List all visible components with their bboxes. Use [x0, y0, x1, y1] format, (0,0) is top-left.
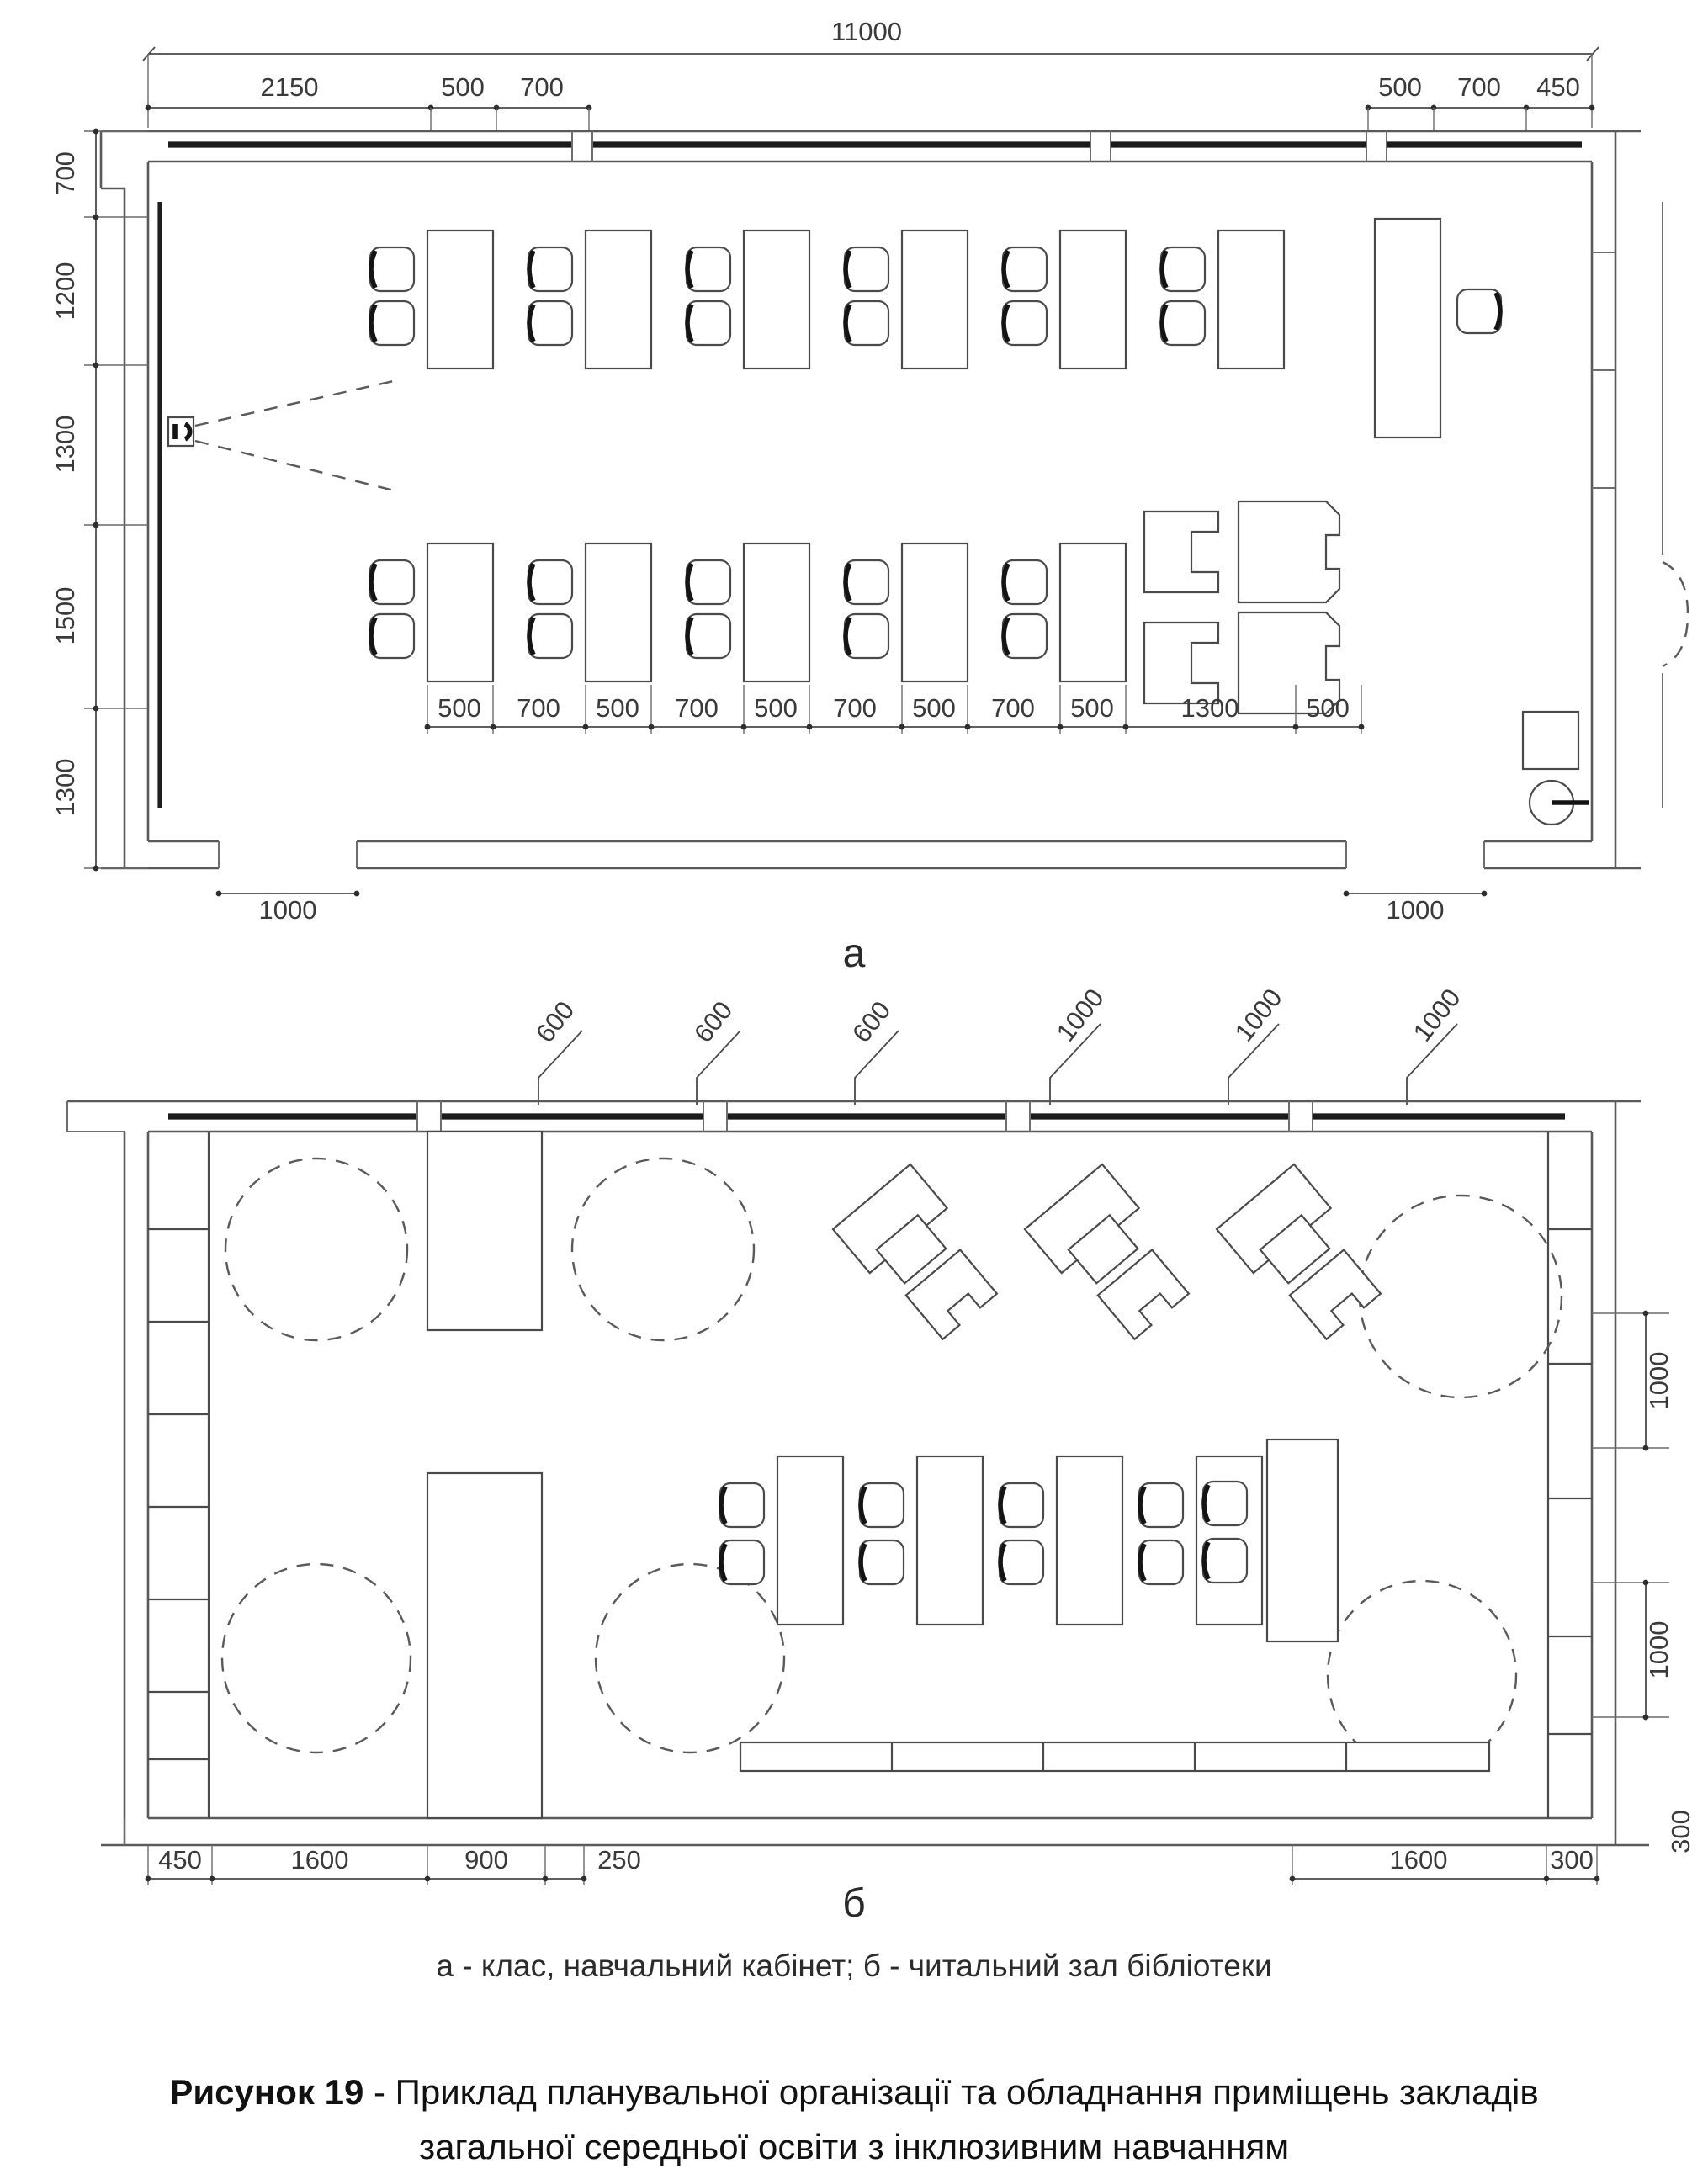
- teacher-desk: [1375, 219, 1501, 437]
- dim-label: 1600: [1390, 1845, 1448, 1874]
- dim-label: 1000: [259, 895, 317, 925]
- caption-line-2: загальної середньої освіти з інклюзивним…: [0, 2119, 1708, 2174]
- figure-legend: а - клас, навчальний кабінет; б - читаль…: [0, 1949, 1708, 1984]
- desk-group: [1003, 231, 1126, 369]
- walls: [101, 131, 1688, 868]
- dim-label: 500: [1070, 693, 1114, 723]
- dim-label: 1300: [50, 416, 80, 474]
- dim-label: 1000: [1387, 895, 1445, 925]
- dim-label: 300: [1666, 1810, 1695, 1853]
- dim-label: 500: [912, 693, 956, 723]
- reading-desk-row: [720, 1440, 1338, 1641]
- dim-label: 500: [1378, 72, 1422, 102]
- dim-label: 900: [464, 1845, 508, 1874]
- dim-label: 250: [597, 1845, 641, 1874]
- dim-chain-bottom-left: 450 1600 900 250: [146, 1845, 641, 1885]
- dim-label: 1000: [1229, 984, 1288, 1047]
- desk-group: [845, 543, 968, 681]
- dim-door-right: 1000: [1344, 891, 1488, 925]
- desk-group: [1000, 1456, 1122, 1625]
- dim-label: 1200: [50, 262, 80, 321]
- cabinet: [1523, 712, 1578, 769]
- desk-group: [1161, 231, 1284, 369]
- dim-chain-left: 700 1200 1300 1500 1300: [50, 129, 148, 872]
- caption-text: - Приклад планувальної організації та об…: [363, 2072, 1538, 2112]
- dim-label: 1000: [1051, 984, 1110, 1047]
- dim-label: 700: [675, 693, 719, 723]
- dim-label: 700: [517, 693, 560, 723]
- desk-row-top: [370, 231, 1284, 369]
- caption-number: Рисунок 19: [169, 2072, 363, 2112]
- tilted-study-stations: [833, 1164, 1393, 1348]
- dim-label: 700: [991, 693, 1035, 723]
- desk-group: [528, 231, 651, 369]
- dim-label: 500: [441, 72, 485, 102]
- dim-label: 1300: [50, 759, 80, 817]
- dim-label: 1500: [50, 587, 80, 645]
- bookshelf-right-wall: [1548, 1132, 1592, 1818]
- dim-chain-desks: 500 700 500 700 500 700 500 700 500 1300…: [425, 685, 1365, 734]
- dim-door-left: 1000: [216, 891, 360, 925]
- turning-circle: [1360, 1196, 1562, 1397]
- bookshelf-left-wall: [148, 1132, 209, 1818]
- dim-chain-top-right: 500 700 450: [1366, 72, 1595, 131]
- dim-label: 450: [1536, 72, 1580, 102]
- dim-label: 1000: [1408, 984, 1467, 1047]
- sight-line: [195, 380, 397, 426]
- turning-circle: [225, 1159, 407, 1340]
- dim-label: 1300: [1181, 693, 1239, 723]
- figure-caption: Рисунок 19 - Приклад планувальної органі…: [0, 2065, 1708, 2174]
- turning-circle: [1328, 1581, 1516, 1769]
- dim-label: 500: [596, 693, 639, 723]
- caption-line-1: Рисунок 19 - Приклад планувальної органі…: [0, 2065, 1708, 2119]
- turning-circle: [222, 1564, 411, 1752]
- washbasin-icon: [1530, 781, 1589, 825]
- plan-b-label: б: [0, 1880, 1708, 1927]
- tilted-station: [833, 1164, 1010, 1348]
- plan-b-library-drawing: 600 600 600 1000 1000 1000: [0, 977, 1708, 1894]
- chair-icon: [1203, 1539, 1247, 1583]
- desk-group: [370, 543, 493, 681]
- chair-icon: [1203, 1482, 1247, 1525]
- dim-chain-bottom-right: 1600 300: [1290, 1845, 1600, 1885]
- dim-label: 2150: [261, 72, 319, 102]
- desk-group: [687, 231, 809, 369]
- dim-chain-top-left: 2150 500 700: [146, 72, 592, 131]
- bookshelf-bottom-wall: [740, 1742, 1489, 1771]
- dim-label: 450: [158, 1845, 202, 1874]
- dim-windows-top: 600 600 600 1000 1000 1000: [530, 984, 1467, 1105]
- projector-icon: [168, 417, 194, 446]
- tilted-station: [1025, 1164, 1201, 1348]
- dim-label: 1000: [1644, 1352, 1674, 1410]
- dim-chain-right: 1000 1000 300: [1592, 1311, 1695, 1853]
- dim-label: 500: [1306, 693, 1350, 723]
- dim-label: 11000: [831, 17, 902, 46]
- dim-label: 700: [1457, 72, 1501, 102]
- desk-group: [687, 543, 809, 681]
- plan-a-classroom-drawing: 11000 2150 500 700 500 700 450: [0, 0, 1708, 925]
- plan-a-label: а: [0, 931, 1708, 977]
- desk-group: [1003, 543, 1126, 681]
- door-swing-right: [1663, 562, 1688, 666]
- sight-line: [195, 441, 397, 491]
- dim-label: 1000: [1644, 1621, 1674, 1679]
- dim-label: 700: [833, 693, 877, 723]
- bookshelf-stack-upper: [427, 1132, 542, 1330]
- dim-label: 700: [50, 151, 80, 195]
- bookshelf-stack-lower: [427, 1473, 542, 1818]
- dim-label: 700: [520, 72, 564, 102]
- dim-label: 300: [1550, 1845, 1594, 1874]
- desk-group: [528, 543, 651, 681]
- turning-circle: [572, 1159, 754, 1340]
- desk-group: [370, 231, 493, 369]
- turning-circle: [596, 1564, 784, 1752]
- desk-group: [845, 231, 968, 369]
- dim-label: 1600: [291, 1845, 349, 1874]
- tilted-station: [1217, 1164, 1393, 1348]
- dim-label: 500: [754, 693, 798, 723]
- desk-row-bottom: [370, 501, 1339, 713]
- desk-group: [720, 1456, 843, 1625]
- accessible-desk-group: [1144, 501, 1339, 602]
- dim-label: 500: [438, 693, 481, 723]
- desk-group: [860, 1456, 983, 1625]
